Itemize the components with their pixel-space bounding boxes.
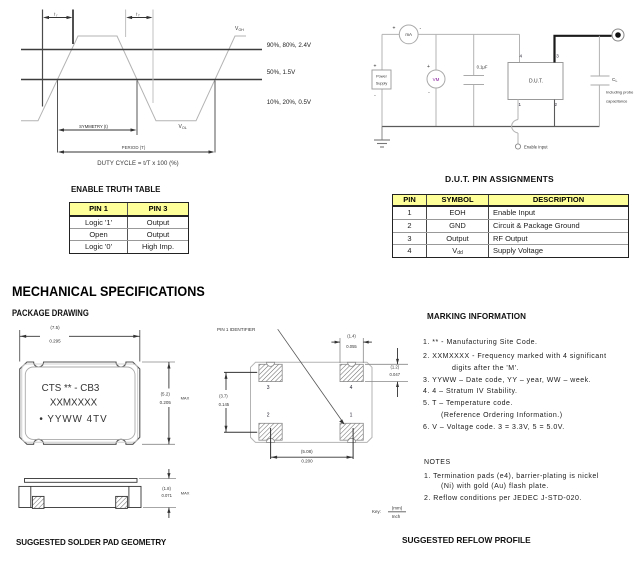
svg-text:-: - — [374, 93, 376, 99]
svg-text:(7.5): (7.5) — [50, 325, 60, 330]
svg-text:0.295: 0.295 — [49, 339, 61, 344]
svg-text:• YYWW 4TV: • YYWW 4TV — [39, 414, 107, 425]
svg-text:10%, 20%, 0.5V: 10%, 20%, 0.5V — [267, 99, 312, 106]
svg-text:f: f — [139, 14, 140, 18]
svg-text:+: + — [374, 64, 377, 70]
svg-text:Key:: Key: — [372, 509, 381, 514]
svg-text:OH: OH — [239, 28, 245, 32]
svg-text:Power: Power — [376, 75, 387, 79]
svg-text:PERIOD (T): PERIOD (T) — [122, 145, 146, 150]
svg-text:4: 4 — [520, 54, 523, 59]
svg-text:L: L — [616, 79, 618, 83]
svg-text:capacitance: capacitance — [606, 99, 628, 104]
svg-text:VM: VM — [433, 77, 440, 82]
svg-text:0.071: 0.071 — [161, 493, 172, 498]
svg-text:PIN 1 IDENTIFIER: PIN 1 IDENTIFIER — [217, 327, 256, 332]
svg-text:0.047: 0.047 — [390, 372, 401, 377]
svg-text:+: + — [427, 64, 430, 70]
svg-text:Including probe: Including probe — [606, 90, 634, 95]
svg-text:r: r — [57, 14, 59, 18]
svg-text:4: 4 — [350, 385, 353, 391]
svg-text:-: - — [428, 90, 430, 96]
svg-text:+: + — [393, 25, 396, 31]
svg-text:Enable Input: Enable Input — [524, 144, 548, 149]
svg-text:90%, 80%, 2.4V: 90%, 80%, 2.4V — [267, 42, 312, 49]
svg-text:2: 2 — [267, 413, 270, 419]
svg-text:3: 3 — [556, 54, 559, 59]
svg-text:0.145: 0.145 — [219, 402, 230, 407]
svg-text:0.1µF: 0.1µF — [477, 65, 488, 70]
svg-text:D.U.T.: D.U.T. — [529, 79, 543, 85]
svg-text:1: 1 — [350, 413, 353, 419]
svg-text:MAX: MAX — [181, 396, 190, 401]
svg-text:XXMXXXX: XXMXXXX — [50, 398, 98, 409]
svg-text:DUTY CYCLE = t/T x 100 (%): DUTY CYCLE = t/T x 100 (%) — [97, 161, 179, 167]
svg-text:MAX: MAX — [181, 491, 190, 496]
svg-text:(1.2): (1.2) — [390, 365, 399, 370]
svg-text:1: 1 — [519, 102, 522, 107]
svg-text:3: 3 — [267, 385, 270, 391]
svg-text:Inch: Inch — [392, 514, 401, 519]
svg-text:(mm): (mm) — [392, 506, 403, 511]
svg-text:(5.08): (5.08) — [301, 449, 313, 454]
svg-text:(1.4): (1.4) — [347, 333, 356, 338]
svg-text:-: - — [419, 25, 421, 31]
svg-text:mA: mA — [405, 32, 412, 37]
svg-text:0.055: 0.055 — [346, 344, 357, 349]
svg-text:0.205: 0.205 — [160, 400, 172, 405]
svg-text:CTS ** - CB3: CTS ** - CB3 — [42, 383, 100, 394]
svg-text:50%, 1.5V: 50%, 1.5V — [267, 69, 296, 76]
svg-text:SYMMETRY (t): SYMMETRY (t) — [79, 124, 108, 129]
svg-text:(5.2): (5.2) — [161, 392, 171, 397]
svg-text:OL: OL — [182, 126, 187, 130]
svg-text:Supply: Supply — [376, 82, 388, 86]
svg-text:(1.8): (1.8) — [162, 486, 171, 491]
svg-text:0.200: 0.200 — [301, 459, 313, 464]
svg-text:(3.7): (3.7) — [219, 394, 228, 399]
